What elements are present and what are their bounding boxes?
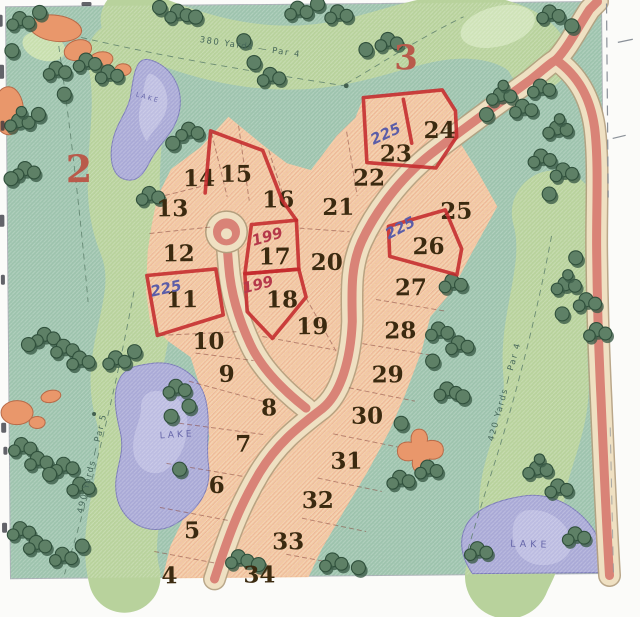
lot-number-9: 9	[219, 361, 235, 388]
plat-map-scan-page: 2 3 380 Yards — Par 4 420 Yards — Par 4 …	[0, 0, 640, 617]
lot-number-10: 10	[192, 328, 224, 355]
lot-number-14: 14	[183, 165, 215, 192]
lot-number-19: 19	[296, 313, 328, 340]
lot-number-33: 33	[272, 528, 304, 555]
lot-number-20: 20	[311, 249, 343, 276]
lot-number-12: 12	[163, 240, 195, 267]
lot-number-30: 30	[351, 402, 383, 429]
lot-number-28: 28	[384, 317, 416, 344]
lot-number-24: 24	[423, 117, 455, 144]
lot-number-7: 7	[235, 431, 251, 458]
lot-number-32: 32	[302, 487, 334, 514]
lot-number-5: 5	[184, 517, 200, 544]
scan-speck	[1, 121, 5, 131]
lot-number-4: 4	[161, 562, 177, 589]
scan-speck	[0, 15, 3, 27]
scan-speck	[3, 447, 7, 455]
lot-number-29: 29	[372, 361, 404, 388]
lot-number-6: 6	[209, 472, 225, 499]
plat-map-scan: 2 3 380 Yards — Par 4 420 Yards — Par 4 …	[0, 0, 640, 617]
lake-label-mid-left: LAKE	[159, 429, 195, 441]
scan-speck	[81, 2, 91, 6]
map-sheet: 2 3 380 Yards — Par 4 420 Yards — Par 4 …	[0, 0, 638, 591]
lot-number-31: 31	[330, 448, 362, 475]
lot-number-17: 17	[259, 243, 291, 270]
hole-number-2: 2	[66, 146, 93, 191]
lot-number-27: 27	[395, 274, 427, 301]
cul-de-sac-circle	[205, 210, 248, 253]
lot-number-8: 8	[261, 394, 277, 421]
scan-speck	[1, 423, 6, 433]
hole-number-3: 3	[394, 38, 418, 78]
lot-number-21: 21	[322, 194, 354, 221]
scan-speck	[0, 65, 4, 79]
lot-number-22: 22	[353, 164, 385, 191]
lot-number-13: 13	[156, 195, 188, 222]
scan-speck	[0, 215, 4, 227]
scan-speck	[2, 523, 7, 533]
lot-number-15: 15	[220, 161, 252, 188]
lake-label-bottom-right: LAKE	[510, 539, 551, 551]
scan-speck	[1, 275, 5, 285]
lot-number-26: 26	[412, 233, 444, 260]
lot-number-34: 34	[243, 561, 275, 588]
